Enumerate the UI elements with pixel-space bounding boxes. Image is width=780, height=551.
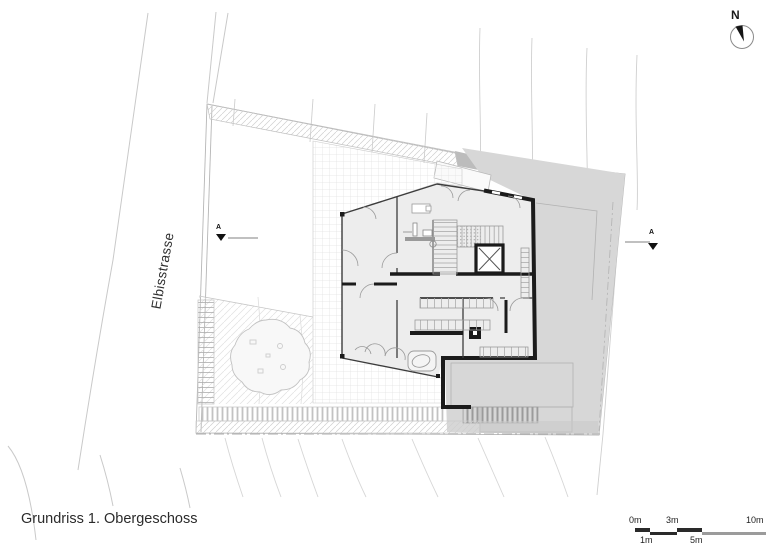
bathtub bbox=[408, 351, 436, 371]
contour-lines-bottom bbox=[225, 437, 568, 497]
scale-segment-3-5 bbox=[677, 528, 702, 532]
scale-segment-0-1 bbox=[635, 528, 650, 532]
section-letter-left: A bbox=[216, 224, 221, 231]
scale-segment-1-3 bbox=[650, 532, 677, 536]
steps-strip-left bbox=[198, 300, 214, 404]
elevator bbox=[476, 245, 503, 273]
floor-plan-page: N Elbisstrasse A A Grundriss 1. Obergesc… bbox=[0, 0, 780, 551]
section-letter-right: A bbox=[649, 229, 654, 236]
section-marker-left bbox=[216, 234, 258, 241]
section-marker-right bbox=[625, 242, 658, 250]
gray-band-bottom bbox=[480, 421, 598, 433]
site-layer bbox=[8, 12, 637, 540]
scale-label-10m: 10m bbox=[746, 515, 764, 525]
steps-strip-bottom bbox=[199, 407, 443, 421]
scale-label-5m: 5m bbox=[690, 535, 703, 545]
furniture bbox=[412, 204, 431, 213]
scale-label-1m: 1m bbox=[640, 535, 653, 545]
scale-label-3m: 3m bbox=[666, 515, 679, 525]
scale-segment-5-10 bbox=[702, 532, 766, 536]
hatch-band-bottom bbox=[196, 421, 480, 433]
steps-strip-bottom-right bbox=[463, 407, 538, 423]
floor-plan-drawing bbox=[0, 0, 780, 551]
drawing-title: Grundriss 1. Obergeschoss bbox=[21, 511, 198, 527]
scale-label-0m: 0m bbox=[629, 515, 642, 525]
street-lines bbox=[8, 12, 228, 540]
north-label: N bbox=[731, 8, 740, 22]
column-box-core bbox=[473, 331, 477, 335]
north-arrow-icon bbox=[731, 26, 754, 49]
